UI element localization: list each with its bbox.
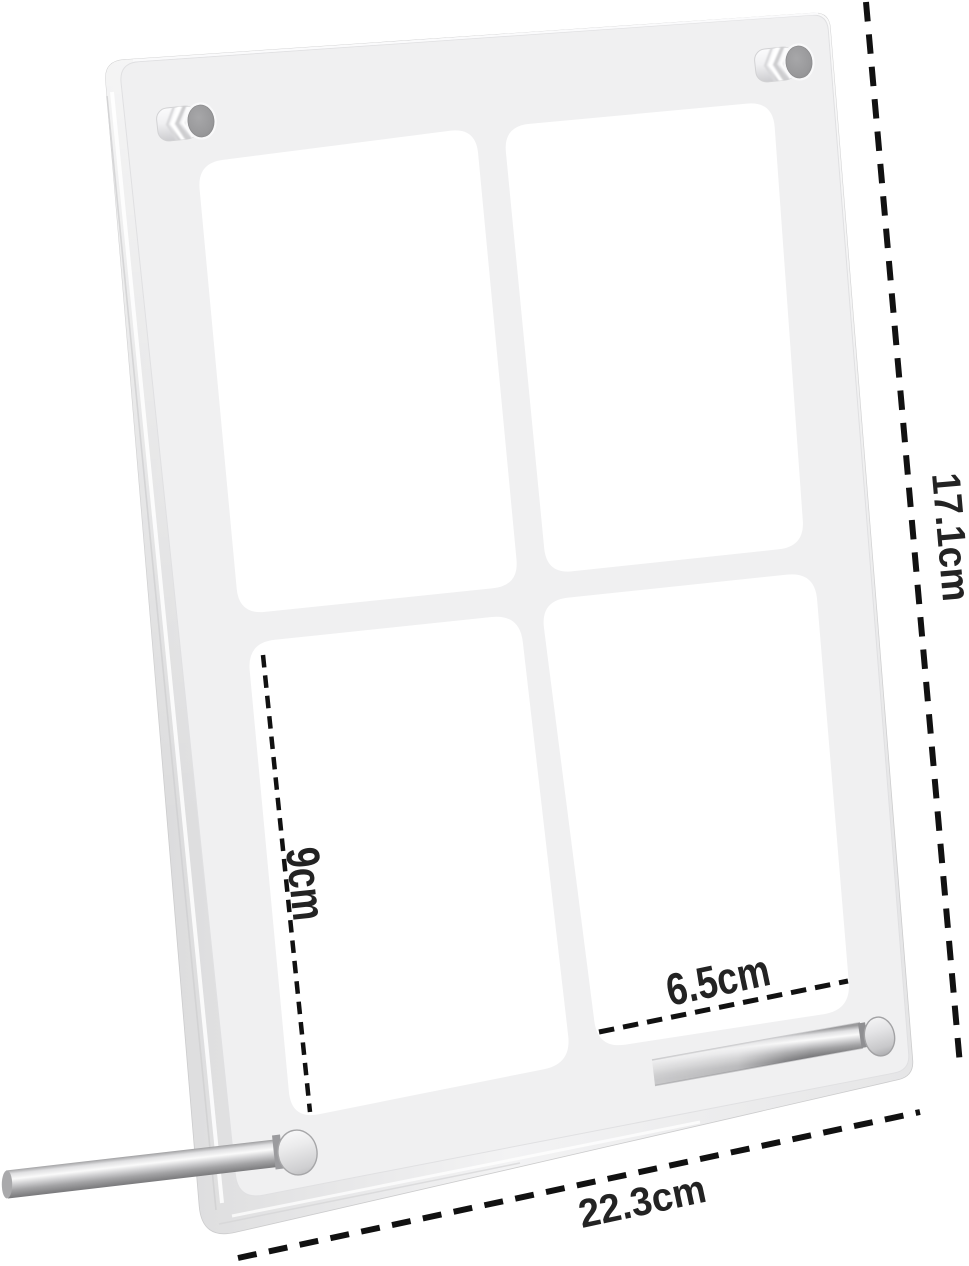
svg-text:9cm: 9cm xyxy=(276,845,336,923)
